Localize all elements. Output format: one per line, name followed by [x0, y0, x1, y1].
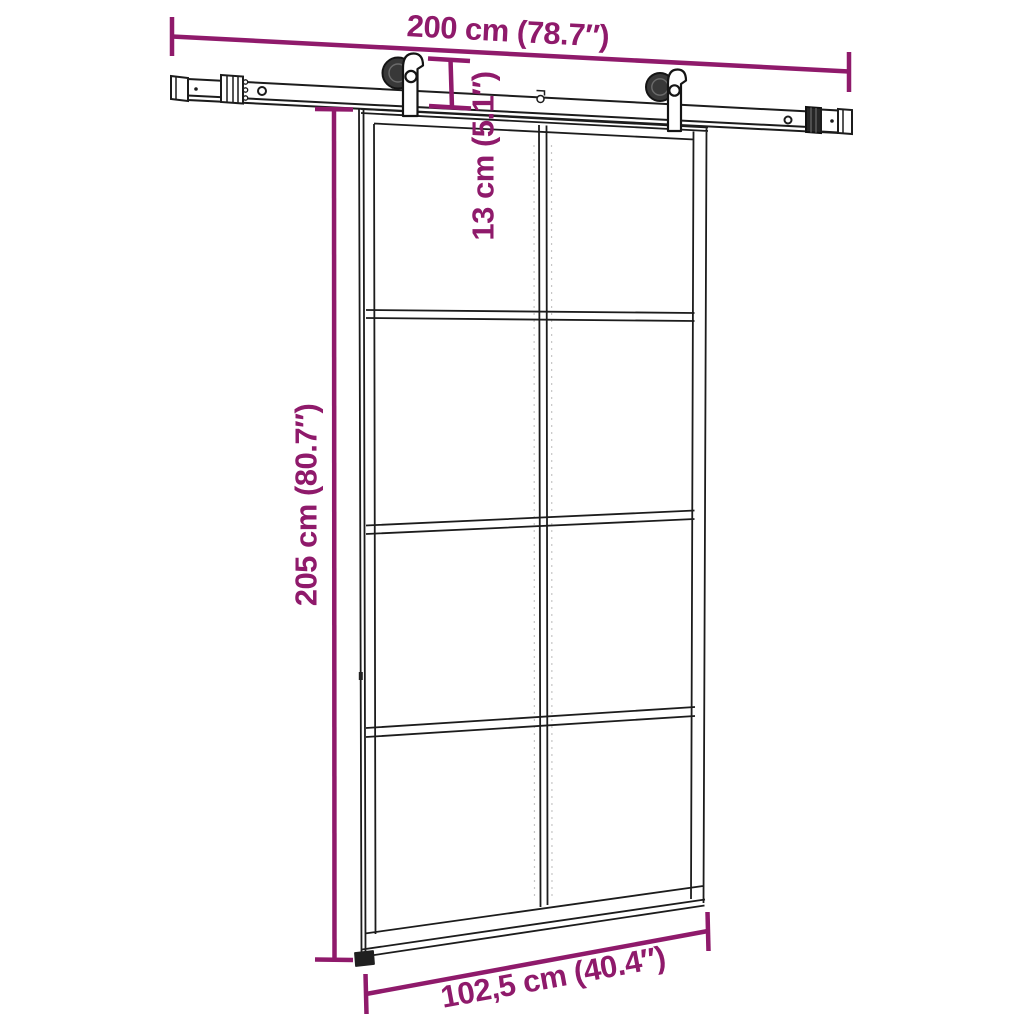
rail-right-end-cap — [838, 109, 852, 134]
rail-bar — [188, 79, 838, 133]
rail-left-end-cap — [171, 76, 188, 101]
rail-width-label: 200 cm (78.7″) — [406, 8, 610, 54]
glass-grid-dividers — [366, 310, 695, 737]
sliding-rail — [171, 75, 852, 134]
dim-width-tick-right — [708, 912, 709, 951]
glass-edge-dotted-lines — [534, 145, 552, 900]
rail-left-bracket-tooth — [243, 80, 247, 84]
door-height-label: 205 cm (80.7″) — [289, 404, 324, 607]
left-roller-bolt-hole — [405, 71, 416, 82]
door — [355, 96, 708, 967]
rail-left-screw-dot — [194, 87, 198, 91]
dim-height-cap-top — [315, 109, 353, 110]
dim-width-tick-left — [366, 974, 367, 1014]
door-center-mullion — [539, 125, 548, 907]
dim-height-cap-bottom — [315, 960, 353, 961]
rail-left-bracket-tooth — [243, 88, 247, 92]
rail-right-end-piece — [821, 110, 838, 133]
rail-mid-bracket-hole — [537, 96, 544, 103]
rail-left-bracket-tooth — [243, 96, 247, 100]
left-stile-mark — [359, 672, 363, 680]
dim-hw-line — [451, 59, 453, 108]
rail-mount-hole-right — [785, 117, 792, 124]
diagram-canvas: 200 cm (78.7″) 13 cm (5.1″) 205 cm (80.7… — [0, 0, 1024, 1024]
rail-right-screw-dot — [830, 119, 834, 123]
hardware-height-label: 13 cm (5.1″) — [466, 71, 501, 240]
door-width-label: 102,5 cm (40.4″) — [438, 939, 668, 1014]
rail-mount-hole-left — [258, 87, 266, 95]
floor-guide-foot — [355, 951, 374, 966]
right-roller-bolt-hole — [669, 85, 679, 95]
rail-mid-bracket — [537, 91, 545, 103]
barn-door-dimension-diagram: 200 cm (78.7″) 13 cm (5.1″) 205 cm (80.7… — [0, 0, 1024, 1024]
rail-left-bracket — [221, 75, 243, 104]
dim-height-line — [334, 111, 335, 959]
rail-right-bracket — [806, 107, 821, 133]
